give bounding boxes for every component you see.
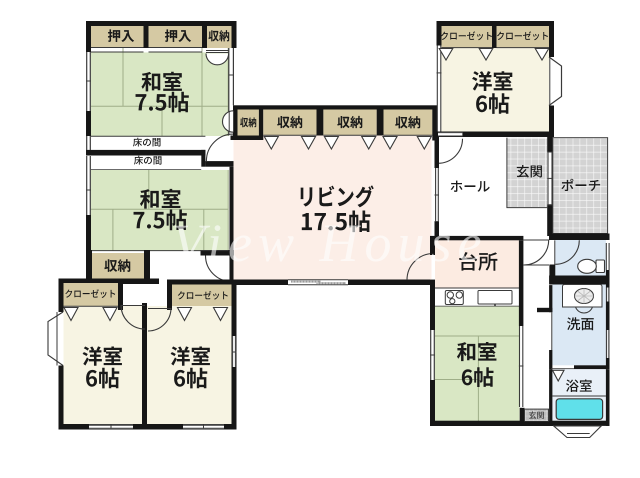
svg-text:View House: View House [172, 213, 487, 273]
